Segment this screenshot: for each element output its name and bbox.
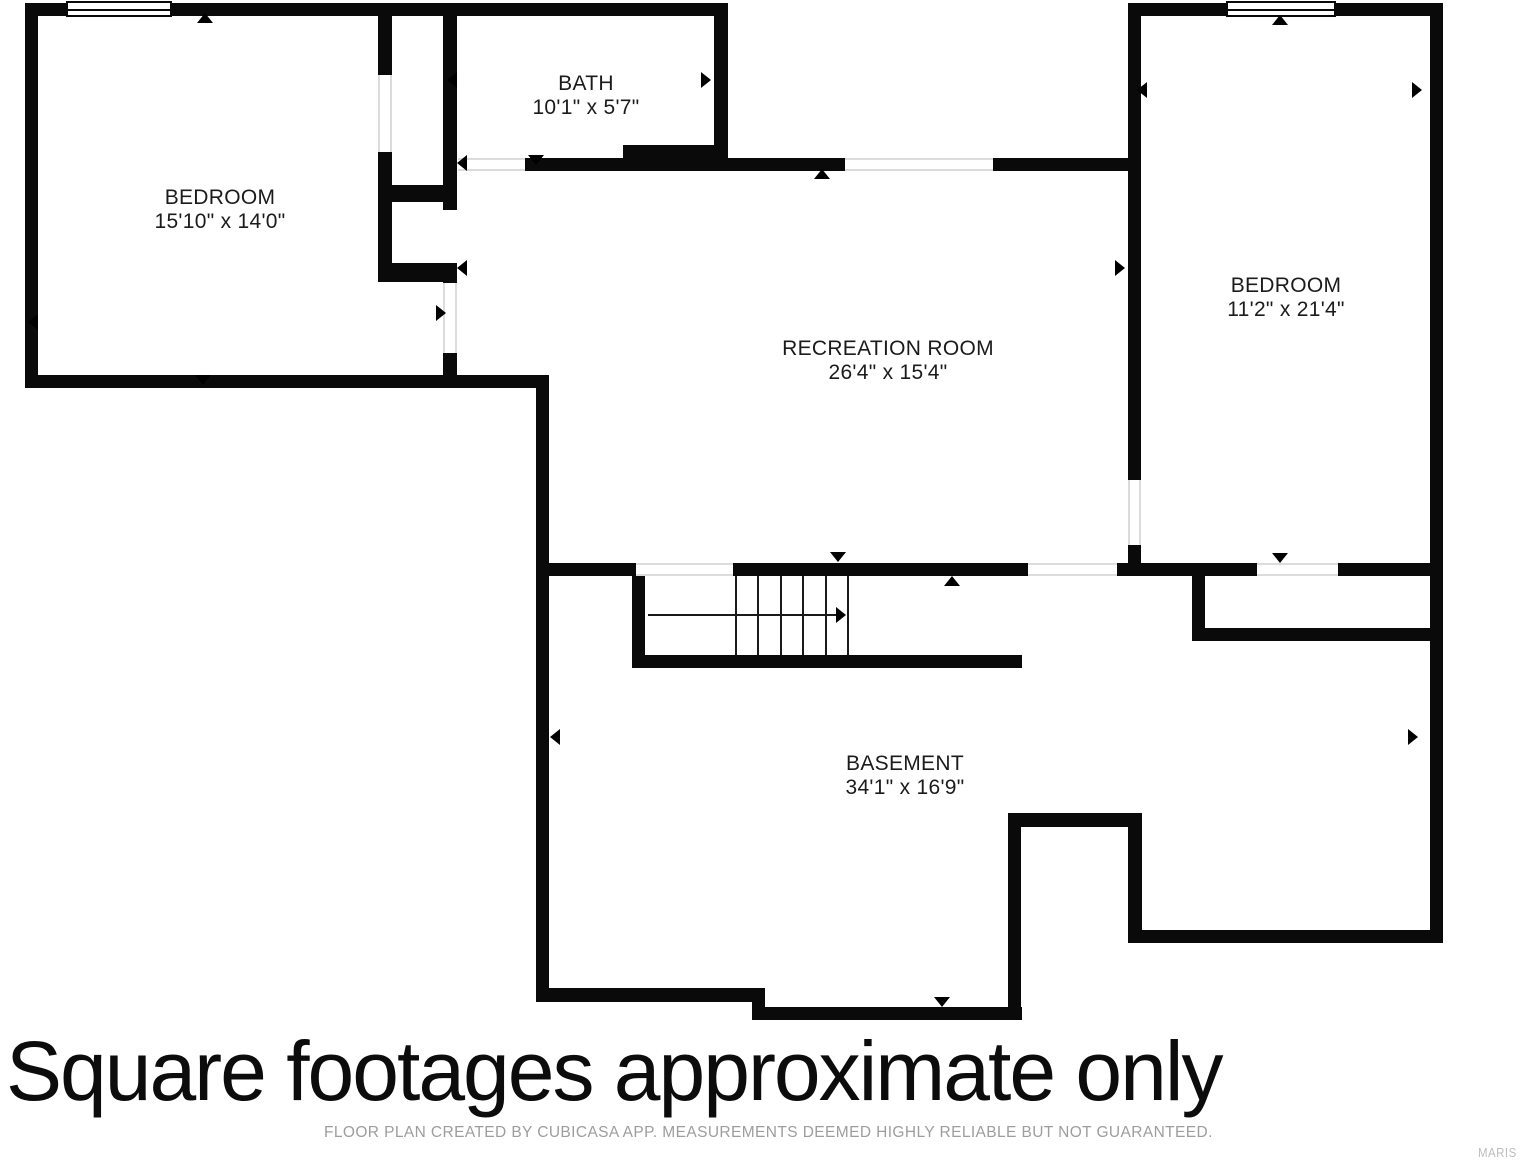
wall-segment: [536, 988, 765, 1002]
wall-segment: [25, 375, 548, 388]
door-opening: [845, 158, 993, 171]
wall-segment: [733, 563, 1028, 576]
door-opening: [1257, 563, 1338, 576]
wall-segment: [752, 1007, 1022, 1020]
window: [1226, 1, 1336, 17]
room-dimensions: 10'1" x 5'7": [532, 96, 639, 120]
door-opening: [636, 563, 733, 576]
wall-segment: [536, 375, 549, 1002]
door-direction-arrow: [195, 375, 211, 385]
door-opening: [458, 158, 525, 171]
wall-segment: [443, 353, 457, 378]
window-mullion: [67, 9, 171, 11]
door-direction-arrow: [197, 13, 213, 23]
wall-segment: [378, 185, 457, 202]
headline-text: Square footages approximate only: [6, 1023, 1221, 1120]
wall-segment: [632, 655, 1022, 668]
wall-segment: [1338, 563, 1430, 576]
door-direction-arrow: [1272, 553, 1288, 563]
room-name: BATH: [532, 72, 639, 96]
door-opening: [378, 75, 392, 152]
door-direction-arrow: [701, 72, 711, 88]
room-name: RECREATION ROOM: [782, 337, 994, 361]
door-direction-arrow: [1412, 82, 1422, 98]
room-dimensions: 26'4" x 15'4": [782, 361, 994, 385]
watermark-maris: MARIS: [1478, 1146, 1517, 1160]
wall-segment: [378, 3, 392, 75]
room-name: BEDROOM: [1227, 274, 1345, 298]
door-direction-arrow: [550, 729, 560, 745]
room-label-bedroom-left: BEDROOM 15'10" x 14'0": [154, 186, 285, 234]
floor-plan: BEDROOM 15'10" x 14'0" BATH 10'1" x 5'7"…: [0, 0, 1530, 1170]
door-direction-arrow: [1137, 82, 1147, 98]
door-direction-arrow: [457, 260, 467, 276]
door-opening: [1028, 563, 1117, 576]
door-direction-arrow: [447, 72, 457, 88]
door-direction-arrow: [28, 314, 38, 330]
room-name: BASEMENT: [845, 752, 964, 776]
room-label-basement: BASEMENT 34'1" x 16'9": [845, 752, 964, 800]
wall-segment: [1008, 827, 1021, 1020]
door-direction-arrow: [1115, 260, 1125, 276]
disclaimer-text: FLOOR PLAN CREATED BY CUBICASA APP. MEAS…: [324, 1124, 1213, 1142]
stair-direction-line: [648, 614, 838, 616]
wall-segment: [1128, 930, 1443, 943]
wall-segment: [1128, 813, 1142, 943]
door-direction-arrow: [934, 997, 950, 1007]
door-direction-arrow: [830, 552, 846, 562]
room-label-bath: BATH 10'1" x 5'7": [532, 72, 639, 120]
wall-segment: [1192, 628, 1430, 641]
wall-segment: [993, 158, 1128, 171]
door-direction-arrow: [836, 607, 846, 623]
door-direction-arrow: [457, 155, 467, 171]
wall-segment: [1430, 3, 1443, 943]
wall-segment: [548, 563, 636, 576]
wall-segment: [25, 3, 38, 388]
door-direction-arrow: [528, 155, 544, 165]
door-direction-arrow: [436, 305, 446, 321]
room-dimensions: 15'10" x 14'0": [154, 210, 285, 234]
room-name: BEDROOM: [154, 186, 285, 210]
window: [66, 1, 172, 17]
wall-segment: [378, 263, 457, 282]
room-dimensions: 34'1" x 16'9": [845, 776, 964, 800]
wall-segment: [1008, 813, 1142, 827]
door-direction-arrow: [1408, 729, 1418, 745]
wall-segment: [443, 3, 457, 210]
room-label-bedroom-right: BEDROOM 11'2" x 21'4": [1227, 274, 1345, 322]
window-mullion: [1227, 9, 1335, 11]
room-dimensions: 11'2" x 21'4": [1227, 298, 1345, 322]
door-opening: [1128, 480, 1141, 545]
door-direction-arrow: [814, 169, 830, 179]
wall-segment: [1117, 563, 1257, 576]
wall-segment: [525, 158, 845, 171]
door-direction-arrow: [944, 576, 960, 586]
wall-segment: [623, 145, 717, 158]
room-label-recreation: RECREATION ROOM 26'4" x 15'4": [782, 337, 994, 385]
stair-tread: [847, 576, 849, 655]
